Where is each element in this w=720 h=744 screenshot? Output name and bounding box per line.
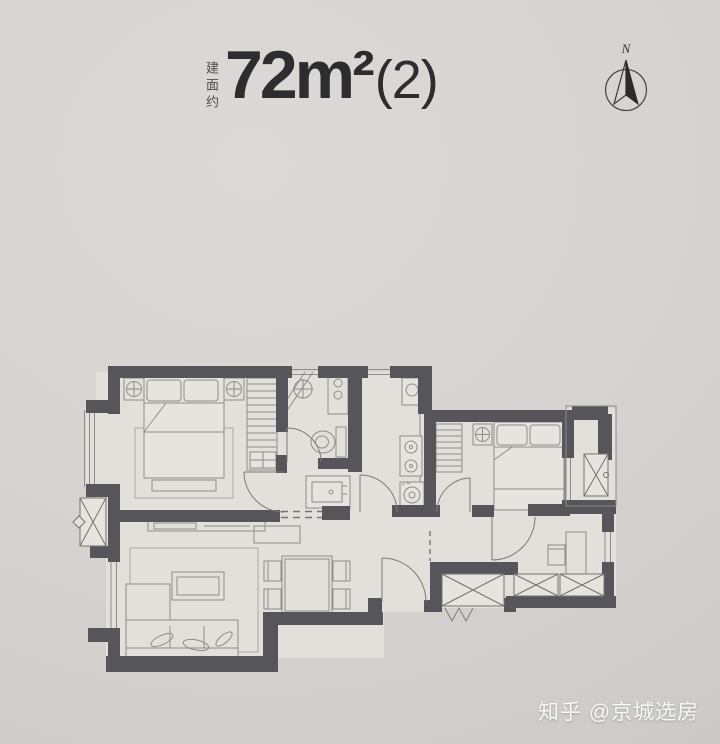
bed [494, 422, 564, 510]
entry-shaft [442, 574, 504, 606]
stove-icon [400, 436, 422, 476]
ac-platform-east [584, 454, 609, 496]
watermark: 知乎 @京城选房 [538, 696, 699, 726]
floor-plan [0, 0, 720, 744]
bifold-door-icon [445, 608, 473, 621]
sofa [126, 620, 238, 658]
ac-platform-west [73, 498, 106, 546]
vanity [306, 476, 350, 508]
sofa-chaise [126, 584, 170, 624]
